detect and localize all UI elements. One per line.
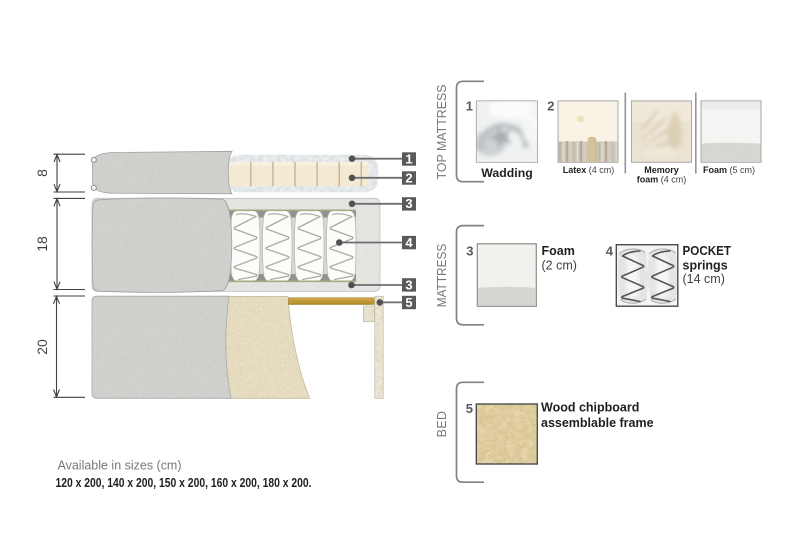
svg-text:3: 3 xyxy=(405,277,412,292)
svg-text:Latex (4 cm): Latex (4 cm) xyxy=(563,165,615,175)
svg-text:Foam (5 cm): Foam (5 cm) xyxy=(703,165,755,175)
svg-text:assemblable frame: assemblable frame xyxy=(541,416,654,430)
svg-text:Wadding: Wadding xyxy=(481,166,532,180)
svg-text:120 x 200, 140 x 200, 150 x 20: 120 x 200, 140 x 200, 150 x 200, 160 x 2… xyxy=(56,475,312,490)
svg-text:3: 3 xyxy=(405,196,412,211)
svg-text:1: 1 xyxy=(466,99,473,114)
svg-text:(2 cm): (2 cm) xyxy=(542,258,577,272)
svg-text:BED: BED xyxy=(435,411,449,438)
svg-text:Available in sizes (cm): Available in sizes (cm) xyxy=(58,457,182,472)
svg-text:5: 5 xyxy=(466,401,473,416)
svg-text:1: 1 xyxy=(405,151,412,166)
svg-text:5: 5 xyxy=(405,295,412,310)
svg-text:4: 4 xyxy=(606,243,614,258)
svg-text:springs: springs xyxy=(683,258,728,272)
svg-text:4: 4 xyxy=(405,235,413,250)
svg-text:foam (4 cm): foam (4 cm) xyxy=(637,175,687,185)
svg-text:3: 3 xyxy=(466,243,473,258)
svg-text:Wood chipboard: Wood chipboard xyxy=(541,401,639,415)
svg-text:8: 8 xyxy=(34,169,50,177)
svg-text:2: 2 xyxy=(547,99,554,114)
svg-text:MATTRESS: MATTRESS xyxy=(435,244,449,308)
svg-text:18: 18 xyxy=(34,236,50,252)
svg-text:TOP MATTRESS: TOP MATTRESS xyxy=(435,85,449,180)
svg-text:Foam: Foam xyxy=(542,244,575,258)
svg-text:20: 20 xyxy=(34,339,50,355)
svg-text:Memory: Memory xyxy=(644,165,679,175)
svg-text:(14 cm): (14 cm) xyxy=(683,272,725,286)
svg-text:2: 2 xyxy=(405,170,412,185)
svg-text:POCKET: POCKET xyxy=(683,244,732,258)
